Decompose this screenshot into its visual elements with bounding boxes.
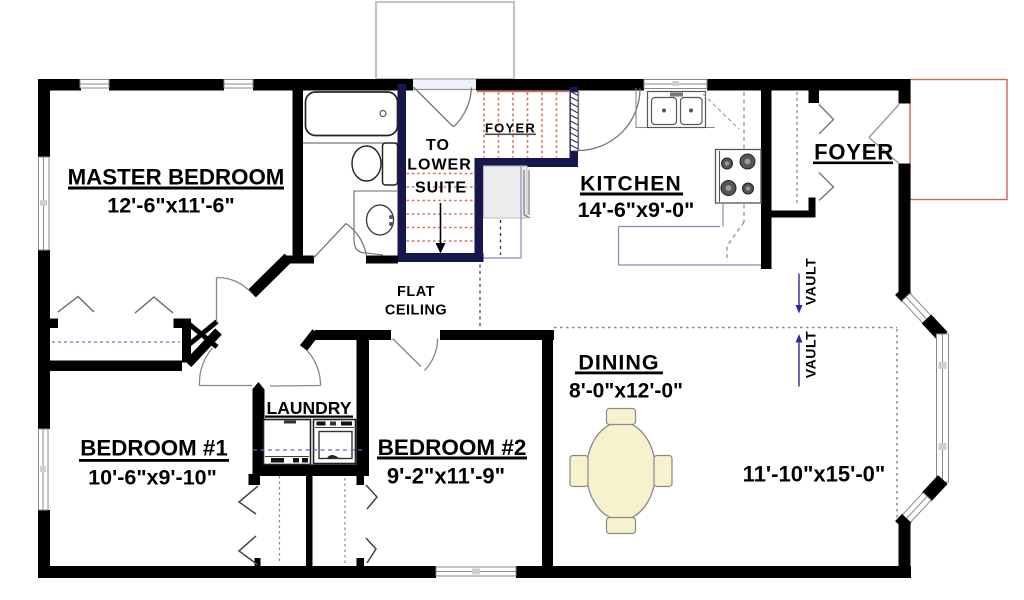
svg-text:LOWER: LOWER (407, 157, 472, 174)
svg-text:BEDROOM #1: BEDROOM #1 (80, 436, 227, 461)
svg-text:10'-6"x9'-10": 10'-6"x9'-10" (88, 466, 217, 490)
svg-text:12'-6"x11'-6": 12'-6"x11'-6" (107, 194, 234, 218)
svg-text:VAULT: VAULT (803, 331, 819, 379)
svg-text:MASTER BEDROOM: MASTER BEDROOM (68, 165, 285, 190)
svg-text:CEILING: CEILING (385, 303, 447, 319)
svg-text:FOYER: FOYER (814, 140, 894, 165)
svg-text:DINING: DINING (578, 351, 659, 375)
svg-text:14'-6"x9'-0": 14'-6"x9'-0" (578, 198, 695, 222)
svg-text:VAULT: VAULT (803, 258, 819, 306)
svg-text:BEDROOM #2: BEDROOM #2 (378, 435, 527, 460)
svg-text:TO: TO (426, 137, 450, 154)
svg-text:8'-0"x12'-0": 8'-0"x12'-0" (569, 380, 683, 403)
svg-text:LAUNDRY: LAUNDRY (267, 398, 352, 418)
svg-text:FOYER: FOYER (485, 121, 536, 136)
svg-text:SUITE: SUITE (415, 180, 467, 197)
svg-text:11'-10"x15'-0": 11'-10"x15'-0" (743, 462, 886, 487)
svg-text:KITCHEN: KITCHEN (580, 173, 682, 196)
svg-text:FLAT: FLAT (397, 284, 435, 300)
svg-text:9'-2"x11'-9": 9'-2"x11'-9" (387, 464, 505, 489)
